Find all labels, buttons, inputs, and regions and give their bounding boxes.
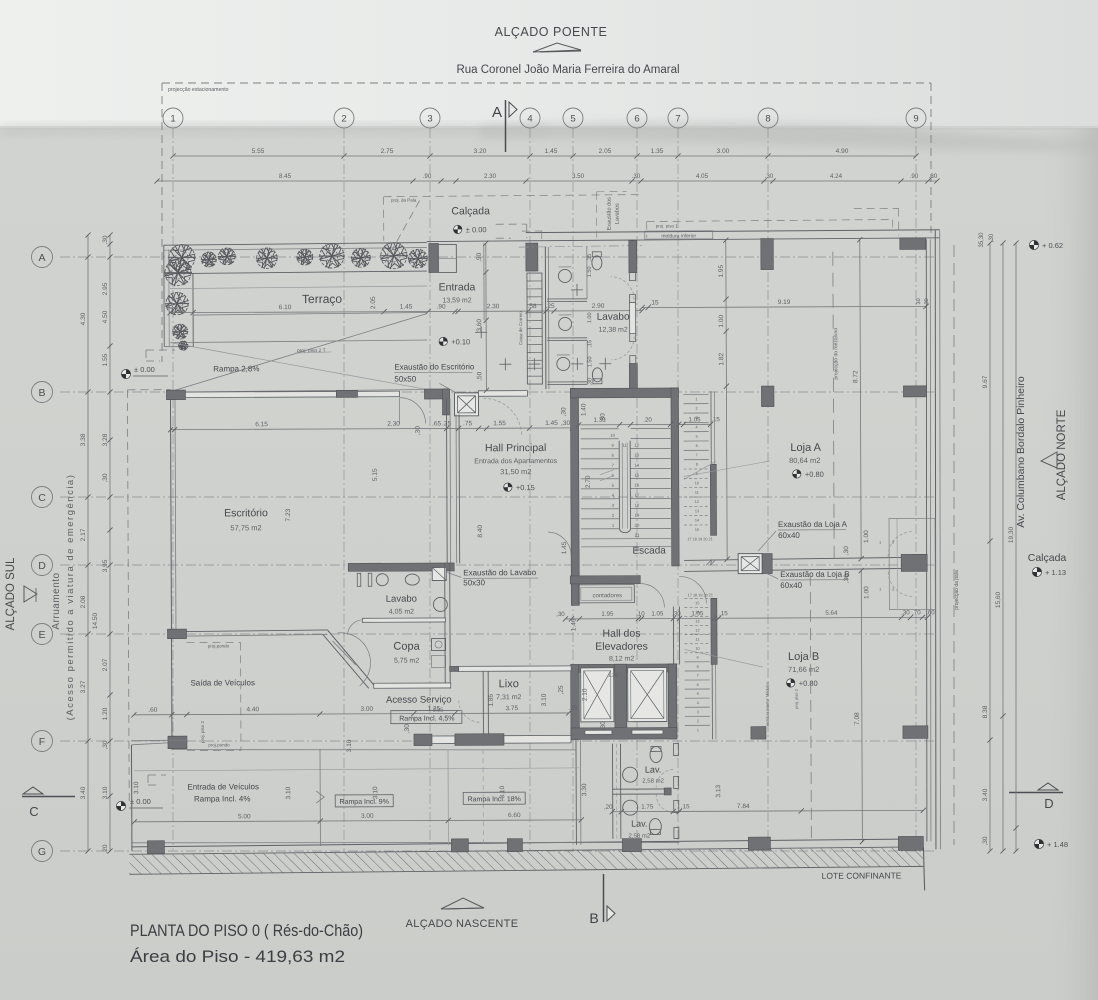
svg-text:3.10: 3.10 [541, 693, 548, 706]
svg-text:7: 7 [675, 114, 680, 125]
svg-text:8.45: 8.45 [279, 173, 292, 180]
svg-text:,30: ,30 [415, 426, 422, 435]
svg-text:.90: .90 [437, 303, 446, 310]
svg-text:proj.pondo: proj.pondo [208, 742, 230, 747]
svg-text:G: G [38, 846, 46, 858]
svg-text:proj.pondo: proj.pondo [208, 643, 230, 648]
svg-text:,30: ,30 [989, 233, 995, 242]
svg-text:.25: .25 [568, 705, 577, 712]
svg-text:projecção da pala: projecção da pala [954, 570, 960, 610]
svg-text:Entrada de Veículos: Entrada de Veículos [187, 782, 259, 791]
svg-text:.30: .30 [765, 173, 774, 180]
svg-text:C: C [29, 804, 38, 819]
svg-text:3.10: 3.10 [372, 786, 379, 799]
svg-text:8.40: 8.40 [477, 525, 484, 538]
svg-text:Escritório: Escritório [224, 507, 268, 519]
svg-text:16: 16 [635, 483, 640, 488]
svg-text:Calçada: Calçada [1028, 552, 1067, 564]
svg-text:4.24: 4.24 [830, 173, 843, 180]
svg-text:14: 14 [695, 519, 699, 523]
svg-text:,30: ,30 [102, 740, 109, 749]
svg-text:17: 17 [635, 493, 640, 498]
svg-text:,20: ,20 [604, 804, 613, 811]
svg-text:12,38 m2: 12,38 m2 [599, 327, 628, 334]
svg-text:.60: .60 [148, 707, 157, 714]
svg-text:2.05: 2.05 [599, 148, 612, 155]
svg-text:Entrada: Entrada [439, 281, 476, 293]
svg-text:1.00: 1.00 [718, 315, 725, 328]
svg-text:3.00: 3.00 [361, 813, 374, 820]
svg-text:31,50 m2: 31,50 m2 [500, 467, 531, 476]
svg-text:,30: ,30 [556, 611, 565, 618]
svg-text:13: 13 [634, 453, 639, 458]
svg-text:6.60: 6.60 [508, 812, 521, 819]
svg-text:80,64 m2: 80,64 m2 [789, 456, 820, 465]
svg-text:8: 8 [696, 463, 698, 467]
svg-text:+0.80: +0.80 [799, 679, 818, 688]
svg-text:4: 4 [696, 425, 698, 429]
svg-text:,30: ,30 [843, 574, 850, 583]
svg-text:5.15: 5.15 [372, 468, 379, 481]
svg-text:LOTE CONFINANTE: LOTE CONFINANTE [822, 870, 902, 880]
svg-text:3.00: 3.00 [717, 148, 730, 155]
svg-text:,30: ,30 [600, 721, 607, 730]
svg-text:3.75: 3.75 [505, 705, 518, 712]
svg-text:.90: .90 [423, 173, 432, 180]
svg-text:1.05: 1.05 [651, 611, 664, 618]
svg-text:+ 0.62: + 0.62 [1042, 241, 1063, 250]
svg-text:Saída de Veículos: Saída de Veículos [190, 678, 255, 687]
svg-text:2,58 m2: 2,58 m2 [642, 779, 664, 785]
svg-text:9: 9 [913, 114, 918, 125]
svg-text:9.67: 9.67 [982, 375, 989, 388]
svg-text:1.30: 1.30 [594, 417, 607, 424]
svg-text:3: 3 [427, 114, 432, 125]
svg-text:± 0.00: ± 0.00 [130, 797, 151, 806]
svg-text:contadores: contadores [592, 593, 622, 599]
svg-text:3.30: 3.30 [581, 783, 588, 796]
svg-text:,10: ,10 [636, 611, 645, 618]
svg-text:± 0.00: ± 0.00 [466, 225, 487, 234]
svg-text:2.08: 2.08 [80, 595, 87, 608]
svg-text:ALÇADO NORTE: ALÇADO NORTE [1056, 409, 1068, 500]
svg-text:Rampa Incl. 4,5%: Rampa Incl. 4,5% [399, 715, 454, 722]
svg-text:2.17: 2.17 [80, 528, 87, 541]
svg-text:Exaustão do Lavabo: Exaustão do Lavabo [463, 568, 537, 577]
svg-text:1.40: 1.40 [580, 403, 587, 416]
svg-text:1.95: 1.95 [601, 611, 614, 618]
svg-text:Rampa Incl. 18%: Rampa Incl. 18% [468, 796, 521, 803]
svg-text:7,31 m2: 7,31 m2 [496, 694, 521, 701]
svg-text:4.90: 4.90 [836, 148, 849, 155]
svg-text:Rampa Incl. 4%: Rampa Incl. 4% [194, 794, 251, 803]
svg-text:3.10: 3.10 [346, 739, 353, 752]
svg-text:Exaustão do Escritório: Exaustão do Escritório [394, 362, 475, 371]
svg-text:,30: ,30 [102, 473, 109, 482]
svg-text:12: 12 [634, 443, 639, 448]
svg-text:+0.15: +0.15 [516, 483, 535, 492]
svg-text:8: 8 [765, 114, 770, 125]
svg-text:6.10: 6.10 [279, 304, 292, 311]
svg-text:9: 9 [697, 656, 699, 660]
svg-text:1.45: 1.45 [561, 541, 568, 554]
svg-text:12: 12 [695, 500, 699, 504]
svg-text:8.72: 8.72 [852, 370, 859, 383]
svg-text:.25: .25 [442, 420, 451, 427]
svg-text:(Acesso permitido a viatura de: (Acesso permitido a viatura de emergênci… [65, 474, 76, 721]
svg-text:Exaustão dos: Exaustão dos [607, 197, 613, 231]
svg-text:Rampa 2,8%: Rampa 2,8% [213, 364, 259, 373]
svg-text:2.95: 2.95 [102, 282, 109, 295]
svg-text:8,12 m2: 8,12 m2 [609, 656, 634, 663]
svg-text:2.30: 2.30 [387, 421, 400, 428]
svg-text:6: 6 [697, 683, 699, 687]
svg-text:B: B [589, 910, 598, 926]
svg-text:1.00: 1.00 [863, 530, 870, 543]
svg-text:5.64: 5.64 [825, 610, 838, 617]
svg-text:1: 1 [697, 728, 699, 732]
svg-text:8: 8 [697, 665, 699, 669]
svg-text:5: 5 [696, 435, 698, 439]
svg-text:ALÇADO NASCENTE: ALÇADO NASCENTE [406, 918, 519, 930]
svg-text:50x30: 50x30 [463, 578, 485, 587]
svg-text:7: 7 [697, 674, 699, 678]
svg-text:21: 21 [635, 533, 640, 538]
svg-text:,30: ,30 [901, 609, 910, 616]
svg-text:50x50: 50x50 [394, 375, 416, 384]
svg-text:20: 20 [635, 523, 640, 528]
svg-text:2.30: 2.30 [484, 173, 497, 180]
svg-text:71,66 m2: 71,66 m2 [788, 665, 819, 674]
svg-text:3.10: 3.10 [102, 786, 109, 799]
svg-text:projecção do mezanino: projecção do mezanino [833, 328, 839, 380]
svg-text:projecção estacionamento: projecção estacionamento [168, 87, 229, 93]
svg-text:2: 2 [695, 407, 697, 411]
svg-text:5: 5 [697, 692, 699, 696]
svg-text:Lav.: Lav. [631, 819, 647, 829]
svg-text:1.00: 1.00 [863, 586, 870, 599]
svg-text:proj. piso 2: proj. piso 2 [200, 720, 205, 743]
svg-text:3.95: 3.95 [102, 559, 109, 572]
svg-text:1.35: 1.35 [651, 148, 664, 155]
svg-text:10: 10 [610, 433, 615, 438]
svg-text:7.08: 7.08 [854, 712, 861, 725]
svg-text:,30: ,30 [561, 407, 568, 416]
svg-text:Lavabo: Lavabo [597, 312, 630, 323]
svg-text:1.45: 1.45 [545, 420, 558, 427]
svg-text:1.55: 1.55 [493, 420, 506, 427]
svg-text:,50: ,50 [476, 371, 483, 380]
svg-text:3.40: 3.40 [982, 788, 989, 801]
svg-text:D: D [38, 560, 46, 572]
svg-text:A: A [38, 252, 45, 264]
svg-text:,35: ,35 [587, 254, 593, 262]
svg-text:1.55: 1.55 [102, 353, 109, 366]
svg-text:.58: .58 [528, 303, 537, 310]
svg-text:1.00: 1.00 [587, 312, 593, 323]
svg-text:1.20: 1.20 [608, 673, 618, 679]
svg-text:60x40: 60x40 [778, 531, 800, 540]
svg-text:6: 6 [696, 444, 698, 448]
svg-text:Exaustão da Loja A: Exaustão da Loja A [778, 520, 848, 529]
svg-text:35,30: 35,30 [979, 232, 985, 248]
svg-text:B: B [38, 387, 45, 399]
svg-text:11: 11 [695, 491, 699, 495]
svg-text:Lav.: Lav. [645, 765, 661, 775]
svg-text:Exaustão da Loja B: Exaustão da Loja B [780, 570, 849, 579]
svg-text:1.46: 1.46 [570, 618, 577, 631]
svg-text:D: D [1044, 796, 1053, 811]
svg-text:.65: .65 [432, 420, 441, 427]
svg-text:,15: ,15 [681, 803, 690, 810]
svg-text:.30: .30 [929, 173, 938, 180]
svg-text:1.95: 1.95 [718, 265, 725, 278]
svg-text:17 18 19 20 21: 17 18 19 20 21 [687, 537, 712, 541]
svg-text:4: 4 [697, 701, 699, 705]
svg-text:10: 10 [695, 481, 699, 485]
svg-text:19,30: 19,30 [1008, 526, 1015, 543]
svg-text:C: C [38, 492, 46, 504]
svg-text:Acesso Serviço: Acesso Serviço [386, 694, 452, 705]
svg-text:ALÇADO SUL: ALÇADO SUL [5, 557, 17, 630]
svg-text:.15: .15 [711, 416, 720, 423]
svg-text:Área do Piso - 419,63 m2: Área do Piso - 419,63 m2 [130, 947, 345, 966]
svg-text:2.07: 2.07 [102, 658, 109, 671]
svg-text:ALÇADO POENTE: ALÇADO POENTE [495, 25, 608, 39]
svg-text:2.10: 2.10 [582, 688, 589, 701]
svg-text:A: A [492, 104, 502, 121]
svg-text:6: 6 [634, 114, 639, 125]
svg-text:,25: ,25 [558, 685, 565, 694]
svg-text:15: 15 [634, 473, 639, 478]
svg-text:14: 14 [634, 463, 639, 468]
svg-text:Terraço: Terraço [302, 292, 342, 306]
svg-text:.15: .15 [650, 300, 659, 307]
svg-text:7: 7 [696, 453, 698, 457]
svg-text:2.30: 2.30 [487, 303, 500, 310]
svg-text:,30: ,30 [102, 235, 109, 244]
svg-text:Escada: Escada [632, 545, 666, 556]
svg-text:moldura inferior: moldura inferior [661, 233, 696, 239]
svg-text:1.50: 1.50 [587, 356, 593, 367]
svg-text:3.10: 3.10 [285, 786, 292, 799]
svg-text:60x40: 60x40 [780, 581, 802, 590]
svg-text:3.10: 3.10 [499, 785, 506, 798]
svg-text:Entrada dos Apartamentos: Entrada dos Apartamentos [474, 458, 557, 465]
svg-text:.90: .90 [910, 173, 919, 180]
svg-text:1.45: 1.45 [400, 304, 413, 311]
svg-text:E: E [38, 629, 45, 641]
svg-text:15: 15 [695, 528, 699, 532]
svg-text:1.50: 1.50 [587, 266, 593, 277]
svg-text:3.60: 3.60 [476, 319, 483, 332]
svg-text:3.00: 3.00 [360, 706, 373, 713]
svg-text:4.50: 4.50 [102, 310, 109, 323]
svg-text:5.00: 5.00 [238, 813, 251, 820]
svg-text:Loja B: Loja B [788, 651, 819, 663]
svg-text:1.05: 1.05 [691, 610, 704, 617]
svg-text:Av. Columbano Bordalo Pinheiro: Av. Columbano Bordalo Pinheiro [1015, 376, 1027, 528]
svg-text:13,59 m2: 13,59 m2 [442, 297, 471, 304]
svg-text:Hall Principal: Hall Principal [485, 442, 546, 454]
svg-text:7.84: 7.84 [737, 803, 750, 810]
svg-text:proj. da Pala: proj. da Pala [391, 198, 417, 203]
svg-text:1.82: 1.82 [718, 353, 725, 366]
svg-text:,30: ,30 [404, 724, 411, 733]
svg-text:+ 1.13: + 1.13 [1045, 568, 1066, 577]
svg-text:2.05: 2.05 [370, 296, 377, 309]
svg-text:Lixo: Lixo [499, 678, 519, 690]
svg-text:.20: .20 [643, 417, 652, 424]
svg-text:14.50: 14.50 [92, 612, 99, 629]
svg-text:13: 13 [695, 619, 699, 623]
svg-text:,90: ,90 [176, 306, 183, 315]
svg-text:19: 19 [635, 513, 640, 518]
svg-text:1.85: 1.85 [488, 694, 495, 707]
svg-text:3: 3 [697, 710, 699, 714]
svg-text:3.38: 3.38 [80, 433, 87, 446]
svg-text:12: 12 [695, 629, 699, 633]
svg-text:1: 1 [170, 114, 175, 125]
svg-text:5,75 m2: 5,75 m2 [394, 658, 419, 665]
svg-text:15,60: 15,60 [995, 591, 1002, 608]
svg-text:57,75 m2: 57,75 m2 [230, 523, 261, 532]
svg-text:11: 11 [696, 638, 700, 642]
svg-text:4,05 m2: 4,05 m2 [389, 609, 414, 616]
svg-text:15: 15 [695, 601, 699, 605]
svg-text:1: 1 [695, 397, 697, 401]
svg-text:± 0.00: ± 0.00 [134, 365, 155, 374]
svg-text:proj. piso 2: proj. piso 2 [794, 688, 799, 708]
svg-text:3.28: 3.28 [102, 433, 109, 446]
svg-text:5: 5 [570, 114, 575, 125]
svg-text:1.20: 1.20 [102, 707, 109, 720]
svg-text:2: 2 [697, 719, 699, 723]
svg-text:3.10: 3.10 [133, 781, 140, 794]
svg-text:30: 30 [924, 298, 930, 304]
svg-text:,30: ,30 [982, 836, 989, 845]
svg-text:8.38: 8.38 [982, 705, 989, 718]
svg-text:,20: ,20 [102, 844, 109, 853]
svg-text:F: F [39, 736, 45, 748]
svg-text:Arruamento: Arruamento [51, 572, 62, 629]
svg-text:4.05: 4.05 [696, 173, 709, 180]
svg-text:,15: ,15 [587, 340, 593, 348]
svg-text:proj. piso 1: proj. piso 1 [656, 223, 679, 228]
svg-text:9.19: 9.19 [778, 299, 791, 306]
svg-text:3.13: 3.13 [715, 785, 722, 798]
svg-text:,90: ,90 [476, 252, 483, 261]
svg-text:3.50: 3.50 [572, 173, 585, 180]
svg-text:,30: ,30 [843, 546, 850, 555]
svg-text:2.90: 2.90 [592, 303, 605, 310]
svg-text:17 18 19 20 21: 17 18 19 20 21 [688, 593, 713, 597]
svg-text:30: 30 [916, 298, 922, 304]
svg-text:2: 2 [341, 114, 346, 125]
svg-text:PLANTA DO PISO 0 ( Rés-do-Chão: PLANTA DO PISO 0 ( Rés-do-Chão) [130, 921, 363, 940]
svg-text:Hall dos: Hall dos [603, 628, 641, 640]
svg-text:5.55: 5.55 [252, 148, 265, 155]
svg-text:+0.80: +0.80 [805, 470, 824, 479]
svg-text:1.45: 1.45 [545, 148, 558, 155]
svg-text:4: 4 [527, 114, 532, 125]
svg-text:Rampa Incl. 9%: Rampa Incl. 9% [340, 799, 389, 806]
svg-text:,70: ,70 [912, 609, 921, 616]
svg-text:moldura interior Módulos: moldura interior Módulos [765, 682, 770, 726]
svg-text:4.30: 4.30 [80, 312, 87, 325]
svg-text:1.35: 1.35 [427, 705, 440, 712]
svg-text:10: 10 [695, 647, 699, 651]
svg-text:3.40: 3.40 [80, 786, 87, 799]
svg-text:3.27: 3.27 [80, 680, 87, 693]
svg-text:.25: .25 [546, 303, 555, 310]
svg-text:Calçada: Calçada [451, 205, 490, 217]
svg-text:.75: .75 [463, 420, 472, 427]
svg-text:2.70: 2.70 [585, 475, 592, 488]
svg-text:1.75: 1.75 [641, 804, 654, 811]
svg-text:.30: .30 [632, 173, 641, 180]
svg-text:,30: ,30 [561, 420, 570, 427]
svg-text:+ 1.48: + 1.48 [1047, 840, 1068, 849]
svg-text:Lavabos: Lavabos [615, 203, 621, 224]
svg-text:Lavabo: Lavabo [386, 594, 417, 605]
svg-text:3: 3 [695, 416, 697, 420]
svg-text:3.20: 3.20 [474, 148, 487, 155]
svg-text:13: 13 [695, 509, 699, 513]
svg-text:Loja A: Loja A [790, 442, 821, 454]
svg-text:18: 18 [635, 503, 640, 508]
svg-text:7.23: 7.23 [285, 508, 292, 521]
svg-text:Elevadores: Elevadores [595, 641, 648, 653]
svg-text:+0.10: +0.10 [451, 337, 470, 346]
svg-text:,60: ,60 [926, 609, 935, 616]
svg-text:Copa: Copa [393, 641, 420, 653]
svg-text:2.75: 2.75 [381, 148, 394, 155]
svg-text:Rua Coronel João Maria Ferreir: Rua Coronel João Maria Ferreira do Amara… [456, 64, 679, 76]
svg-text:11: 11 [622, 443, 627, 448]
svg-text:6.15: 6.15 [255, 421, 268, 428]
svg-text:4.40: 4.40 [246, 706, 259, 713]
svg-text:Caixa de Correio: Caixa de Correio [518, 311, 523, 345]
svg-text:,30: ,30 [587, 378, 593, 386]
